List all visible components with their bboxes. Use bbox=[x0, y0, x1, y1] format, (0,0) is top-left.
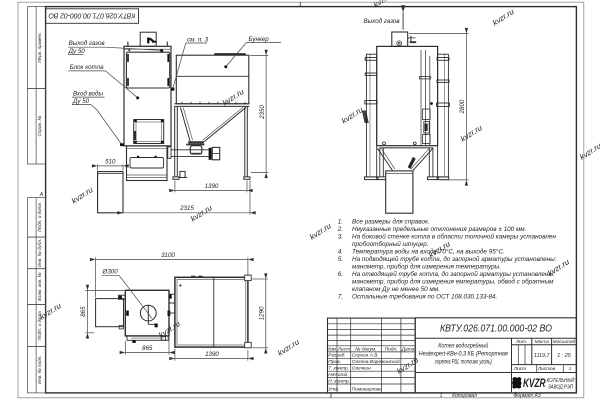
svg-text:Подп. и дата: Подп. и дата bbox=[37, 203, 42, 232]
svg-text:Температура воды на входе 70°С: Температура воды на входе 70°С, на выход… bbox=[352, 248, 505, 256]
svg-text:На отводящей трубе котла, до з: На отводящей трубе котла, до запорной ар… bbox=[352, 270, 555, 278]
svg-text:2800: 2800 bbox=[459, 99, 466, 114]
svg-text:Все размеры для справок.: Все размеры для справок. bbox=[352, 218, 430, 226]
svg-text:7.: 7. bbox=[338, 294, 343, 301]
svg-text:1: 1 bbox=[569, 366, 572, 372]
svg-text:ЗАВОД РЭП: ЗАВОД РЭП bbox=[548, 385, 573, 391]
svg-text:Помикарлова: Помикарлова bbox=[352, 386, 382, 392]
svg-text:Олегов-Варежинский: Олегов-Варежинский bbox=[352, 358, 400, 365]
svg-text:см. п. 3: см. п. 3 bbox=[187, 36, 209, 43]
svg-text:KVZR: KVZR bbox=[523, 378, 546, 390]
svg-text:kvzr.ru: kvzr.ru bbox=[221, 87, 246, 108]
svg-text:Подп.: Подп. bbox=[385, 346, 398, 352]
svg-text:пробоотборный штуцер.: пробоотборный штуцер. bbox=[352, 240, 429, 248]
svg-text:Нач.отд.: Нач.отд. bbox=[328, 372, 348, 378]
svg-text:Т. контр.: Т. контр. bbox=[328, 366, 349, 372]
svg-text:Инв. № подл.: Инв. № подл. bbox=[37, 355, 42, 384]
svg-text:1.: 1. bbox=[338, 219, 343, 226]
svg-text:Подп. и дата: Подп. и дата bbox=[37, 311, 42, 340]
svg-text:2350: 2350 bbox=[259, 105, 266, 120]
svg-text:Взам. инв. №: Взам. инв. № bbox=[37, 272, 42, 300]
svg-text:Блок котла: Блок котла bbox=[70, 64, 104, 71]
svg-text:1390: 1390 bbox=[205, 183, 219, 190]
svg-text:Н. контр.: Н. контр. bbox=[328, 378, 350, 384]
svg-text:На подводящей трубе котла, до: На подводящей трубе котла, до запорной а… bbox=[352, 255, 557, 263]
svg-text:kvzr.ru: kvzr.ru bbox=[340, 105, 365, 126]
svg-text:КВТУ.026.071.00.000-02 ВО: КВТУ.026.071.00.000-02 ВО bbox=[48, 12, 135, 19]
svg-text:Изм.: Изм. bbox=[327, 346, 337, 352]
svg-text:Дата: Дата bbox=[401, 346, 415, 352]
svg-text:Копировал: Копировал bbox=[452, 393, 477, 399]
svg-text:Heatexpert-КВн-0,3 КБ (Ретортн: Heatexpert-КВн-0,3 КБ (Ретортная bbox=[419, 352, 509, 358]
svg-text:манометр, прибор для измерения: манометр, прибор для измерения температу… bbox=[352, 263, 501, 271]
svg-text:КВТУ.026.071.00.000-02 ВО: КВТУ.026.071.00.000-02 ВО bbox=[440, 324, 552, 335]
svg-text:Котел водогрейный: Котел водогрейный bbox=[438, 343, 489, 350]
svg-text:№ докум.: № докум. bbox=[355, 346, 376, 352]
svg-text:kvzr.ru: kvzr.ru bbox=[578, 141, 600, 162]
svg-text:kvzr.ru: kvzr.ru bbox=[70, 185, 95, 206]
svg-text:865: 865 bbox=[80, 306, 87, 317]
svg-text:1 : 25: 1 : 25 bbox=[557, 353, 571, 359]
svg-text:1290: 1290 bbox=[258, 306, 265, 320]
svg-text:Ду 50: Ду 50 bbox=[68, 48, 86, 55]
svg-text:Неуказанные предельные отклоне: Неуказанные предельные отклонения размер… bbox=[352, 225, 526, 233]
svg-text:горелка РШ, топливо уголь): горелка РШ, топливо уголь) bbox=[435, 359, 492, 365]
svg-text:kvzr.ru: kvzr.ru bbox=[308, 221, 333, 242]
svg-text:2.: 2. bbox=[337, 226, 343, 233]
svg-text:Ø300: Ø300 bbox=[102, 269, 119, 276]
svg-text:манометр, прибор для измерения: манометр, прибор для измерения емператур… bbox=[352, 278, 554, 286]
svg-text:клапаном Ду не менее 50 мм.: клапаном Ду не менее 50 мм. bbox=[352, 286, 440, 293]
svg-text:865: 865 bbox=[142, 345, 153, 352]
svg-text:1390: 1390 bbox=[205, 351, 219, 358]
svg-text:Лист: Лист bbox=[337, 346, 350, 352]
svg-text:4.: 4. bbox=[338, 249, 343, 256]
svg-text:1119,7: 1119,7 bbox=[534, 353, 551, 359]
svg-text:На боковой стенке котла в обла: На боковой стенке котла в области топочн… bbox=[352, 233, 556, 241]
svg-text:Формат А3: Формат А3 bbox=[513, 393, 541, 399]
svg-text:510: 510 bbox=[105, 159, 116, 166]
svg-text:Вход воды: Вход воды bbox=[73, 90, 103, 97]
svg-text:А: А bbox=[39, 192, 44, 198]
svg-text:Инв. № дубл.: Инв. № дубл. bbox=[37, 239, 42, 267]
svg-text:Бункер: Бункер bbox=[249, 36, 270, 43]
svg-text:1: 1 bbox=[440, 393, 443, 399]
svg-text:Перв. примен.: Перв. примен. bbox=[37, 32, 42, 63]
svg-text:Утв.: Утв. bbox=[328, 386, 339, 392]
svg-text:Лит.: Лит. bbox=[515, 339, 527, 345]
svg-text:kvzr.ru: kvzr.ru bbox=[459, 123, 484, 144]
svg-text:Масса: Масса bbox=[535, 339, 550, 345]
svg-text:kvzr.ru: kvzr.ru bbox=[372, 0, 397, 9]
svg-text:Пров.: Пров. bbox=[328, 359, 341, 365]
svg-text:5.: 5. bbox=[338, 256, 343, 263]
svg-text:Масштаб: Масштаб bbox=[553, 339, 576, 345]
svg-text:2315: 2315 bbox=[179, 205, 194, 212]
svg-text:Выход газов: Выход газов bbox=[364, 18, 401, 25]
svg-text:kvzr.ru: kvzr.ru bbox=[491, 7, 516, 28]
svg-text:Олечкин: Олечкин bbox=[352, 366, 371, 372]
svg-text:Листов: Листов bbox=[537, 366, 556, 372]
svg-text:6.: 6. bbox=[338, 271, 343, 278]
svg-text:Справ. №: Справ. № bbox=[37, 116, 42, 137]
svg-text:Сергин А.В.: Сергин А.В. bbox=[352, 353, 379, 359]
svg-text:Выход газов: Выход газов bbox=[69, 40, 106, 47]
svg-text:Ду 50: Ду 50 bbox=[72, 98, 90, 105]
svg-text:Остальные требования по ОСТ 10: Остальные требования по ОСТ 108.030.133-… bbox=[352, 293, 497, 301]
svg-text:Лист: Лист bbox=[513, 366, 526, 372]
svg-text:КОТЕЛЬНЫЙ: КОТЕЛЬНЫЙ bbox=[547, 376, 575, 384]
svg-text:kvzr.ru: kvzr.ru bbox=[276, 337, 301, 358]
svg-text:3100: 3100 bbox=[161, 252, 175, 259]
svg-text:3.: 3. bbox=[338, 234, 343, 241]
svg-text:Разраб.: Разраб. bbox=[328, 353, 345, 359]
